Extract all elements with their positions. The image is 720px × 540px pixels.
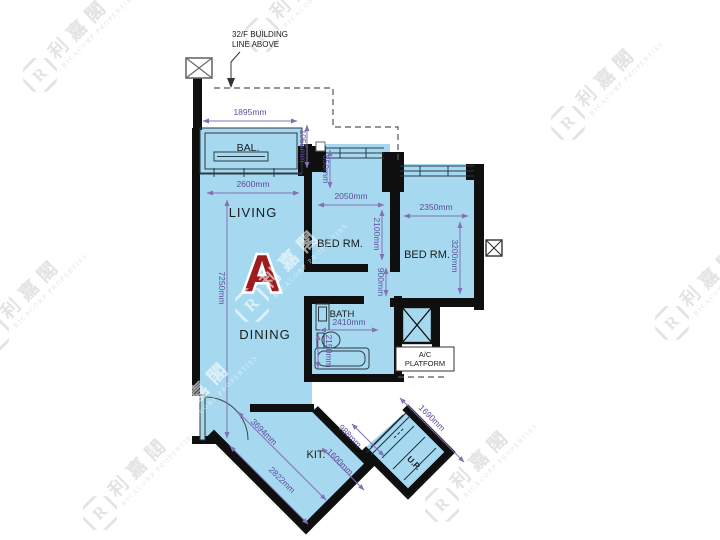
dim-bath-depth: 2150mm	[324, 334, 334, 367]
ac-platform-label-1: A/C	[419, 350, 432, 359]
leader-arrow	[227, 78, 235, 88]
ac-platform-label-2: PLATFORM	[405, 359, 445, 368]
bath-label: BATH	[330, 309, 355, 320]
bedroom1-label: BED RM.	[317, 238, 363, 250]
kitchen-label: KIT.	[307, 449, 326, 461]
dim-living-length: 7250mm	[217, 271, 227, 304]
building-line-note-2: LINE ABOVE	[232, 40, 279, 49]
building-line-note-1: 32/F BUILDING	[232, 30, 288, 39]
column-box	[316, 142, 325, 151]
dim-living-width: 2600mm	[236, 179, 269, 189]
hallway-floor	[312, 272, 404, 298]
balcony-label: BAL.	[237, 142, 260, 154]
dim-bedroom1-bay: 650mm	[321, 155, 331, 183]
bedroom2-label: BED RM.	[404, 249, 450, 261]
unit-letter: A	[243, 245, 281, 303]
dim-bedroom2-depth: 3200mm	[450, 239, 460, 272]
bedroom2-floor	[400, 164, 474, 302]
entrance-door-leaf	[200, 395, 205, 440]
dim-corridor: 900mm	[376, 268, 386, 296]
dim-balcony-width: 1895mm	[233, 107, 266, 117]
dim-bedroom1-depth: 2100mm	[372, 217, 382, 250]
dim-balcony-depth: 1055mm	[298, 129, 308, 162]
dining-label: DINING	[239, 327, 291, 342]
living-label: LIVING	[229, 205, 278, 220]
dim-bedroom1-width: 2050mm	[334, 191, 367, 201]
dim-bedroom2-width: 2350mm	[419, 202, 452, 212]
floor-plan-page: R 利嘉閣 RICACORP PROPERTIES R 利嘉閣RICACORP …	[0, 0, 720, 540]
floor-plan: 1895mm 1055mm 2600mm 7250mm 650mm 2050mm…	[0, 0, 720, 540]
